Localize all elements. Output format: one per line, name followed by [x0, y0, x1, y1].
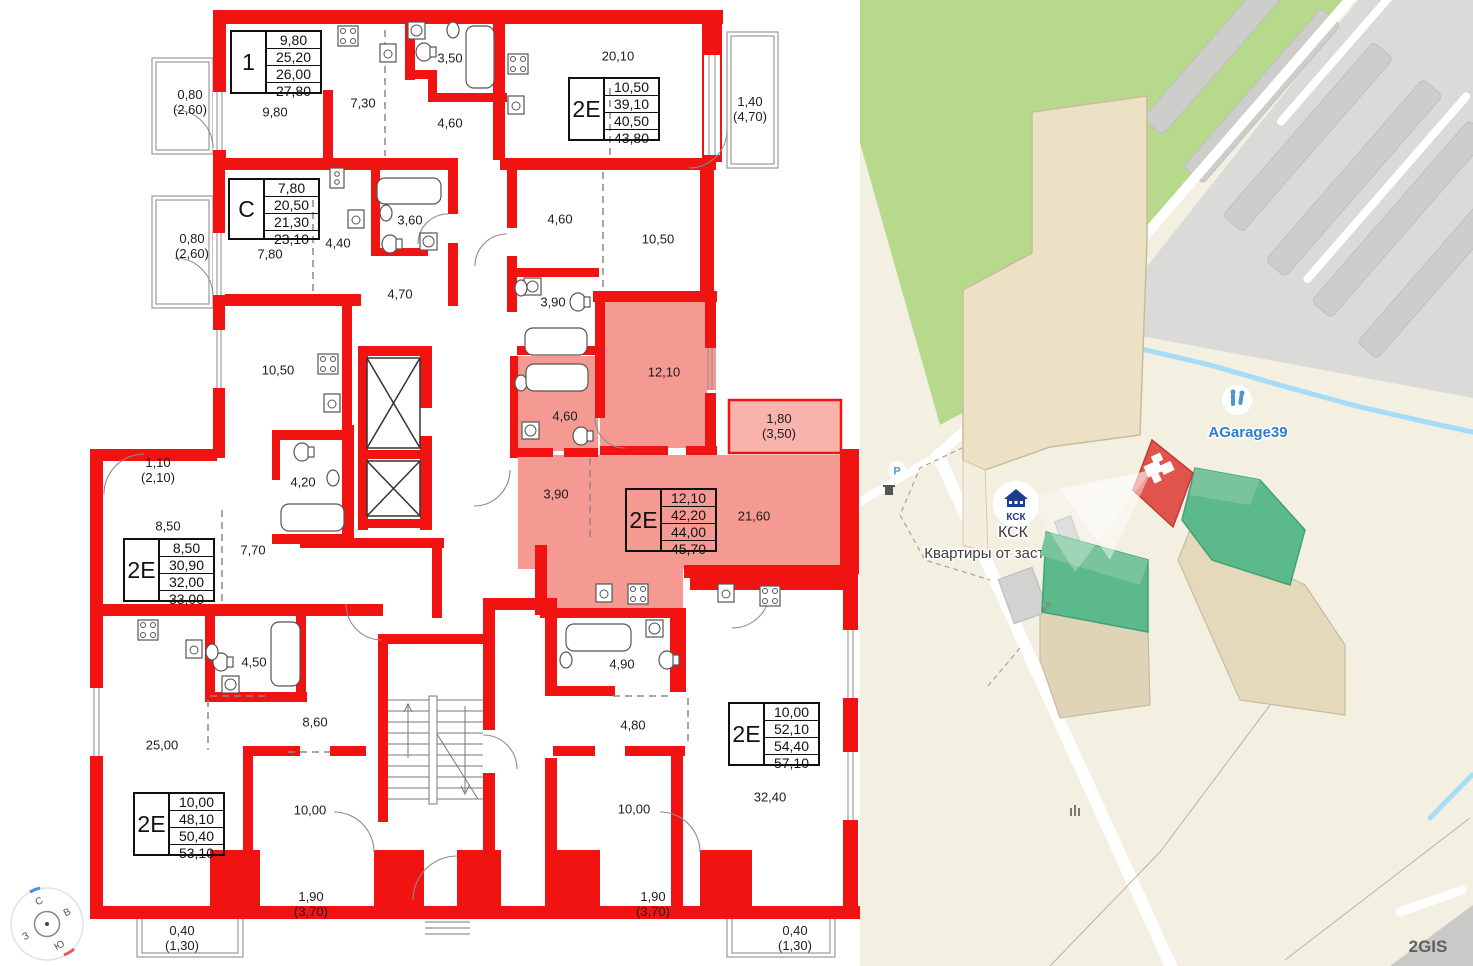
- room-area-label: 0,80 (2,60): [175, 232, 209, 262]
- bathtub-icon: [466, 26, 494, 88]
- washer-icon: [646, 620, 663, 637]
- sink-icon: [324, 394, 340, 412]
- toilet-icon: [294, 443, 314, 461]
- stove-icon: [318, 354, 338, 374]
- floorplan-drawing: С В Ю З: [0, 0, 860, 966]
- apartment-info-table[interactable]: 1 9,8025,2026,0027,80: [230, 30, 322, 94]
- room-area-label: 4,40: [325, 237, 350, 252]
- bathtub-icon: [526, 364, 588, 391]
- sink-icon: [348, 210, 364, 228]
- toilet-icon: [416, 43, 436, 61]
- basin-icon: [380, 205, 392, 221]
- room-area-label: 1,90 (3,70): [294, 890, 328, 920]
- room-area-label: 4,60: [437, 117, 462, 132]
- bathtub-icon: [566, 624, 631, 651]
- elevator-shaft: [367, 358, 420, 516]
- room-area-label: 4,90: [609, 658, 634, 673]
- room-area-label: 3,60: [397, 214, 422, 229]
- room-area-label: 10,00: [618, 803, 651, 818]
- apartment-info-table[interactable]: 2Е 8,5030,9032,0033,00: [123, 538, 215, 602]
- svg-text:Р: Р: [893, 466, 900, 478]
- washer-icon: [222, 676, 239, 693]
- room-area-label: 12,10: [648, 366, 681, 381]
- watermark: 2GIS: [1409, 937, 1448, 956]
- basin-icon: [327, 470, 339, 486]
- apartment-info-table-selected[interactable]: 2Е 12,1042,2044,0045,70: [625, 488, 717, 552]
- garage-service-icon[interactable]: [1222, 385, 1252, 415]
- bathtub-icon: [281, 504, 344, 531]
- bathtub-icon: [377, 178, 441, 204]
- stove-icon: [138, 620, 158, 640]
- stove-icon: [628, 584, 648, 604]
- map-panel[interactable]: КСК Квартиры от застройщ КСК AGarage39 Р: [860, 0, 1473, 966]
- room-area-label: 10,50: [642, 233, 675, 248]
- screen: С В Ю З 9,80 7,30 3,50 4,60 20,10 0,80 (…: [0, 0, 1473, 966]
- room-area-label: 8,60: [302, 716, 327, 731]
- basin-icon: [447, 22, 459, 38]
- room-area-label: 4,70: [387, 288, 412, 303]
- bathtub-icon: [525, 328, 587, 355]
- room-area-label: 4,50: [241, 656, 266, 671]
- room-area-label: 20,10: [602, 50, 635, 65]
- room-area-label: 1,90 (3,70): [636, 890, 670, 920]
- room-area-label: 1,80 (3,50): [762, 412, 796, 442]
- stove-icon: [330, 168, 344, 188]
- room-area-label: 1,10 (2,10): [141, 456, 175, 486]
- apartment-info-table[interactable]: 2Е 10,5039,1040,5043,80: [568, 77, 660, 141]
- sink-icon: [718, 584, 734, 602]
- room-area-label: 3,90: [540, 296, 565, 311]
- room-area-label: 7,30: [350, 97, 375, 112]
- room-area-label: 0,80 (2,60): [173, 88, 207, 118]
- sink-icon: [186, 640, 202, 658]
- room-area-label: 7,70: [240, 544, 265, 559]
- basin-icon: [206, 644, 218, 660]
- basin-icon: [515, 280, 527, 296]
- room-area-label: 32,40: [754, 791, 787, 806]
- toilet-icon: [570, 293, 590, 311]
- bathtub-icon: [271, 622, 300, 686]
- room-area-label: 0,40 (1,30): [165, 924, 199, 954]
- stove-icon: [338, 26, 358, 46]
- basin-icon: [560, 652, 572, 668]
- stove-icon: [508, 54, 528, 74]
- room-area-label: 25,00: [146, 739, 179, 754]
- room-area-label: 4,80: [620, 719, 645, 734]
- washer-icon: [408, 22, 425, 39]
- washer-icon: [420, 233, 437, 250]
- basin-icon: [515, 375, 527, 391]
- apartment-info-table[interactable]: 2Е 10,0052,1054,4057,10: [728, 702, 820, 766]
- room-area-label: 1,40 (4,70): [733, 95, 767, 125]
- room-area-label: 10,50: [262, 364, 295, 379]
- room-area-label: 10,00: [294, 804, 327, 819]
- room-area-label: 4,20: [290, 476, 315, 491]
- room-area-label: 3,50: [437, 52, 462, 67]
- svg-text:КСК: КСК: [1006, 512, 1026, 523]
- washer-icon: [522, 422, 539, 439]
- sink-icon: [508, 96, 524, 114]
- room-area-label: 21,60: [738, 510, 771, 525]
- garage-label[interactable]: AGarage39: [1208, 424, 1287, 441]
- apartment-info-table[interactable]: С 7,8020,5021,3023,10: [228, 178, 320, 240]
- parking-icon[interactable]: Р: [888, 461, 906, 479]
- compass-icon: С В Ю З: [11, 888, 83, 960]
- room-area-label: 0,40 (1,30): [778, 924, 812, 954]
- sink-icon: [596, 584, 612, 602]
- room-area-label: 9,80: [262, 106, 287, 121]
- apartment-info-table[interactable]: 2Е 10,0048,1050,4053,10: [133, 792, 225, 856]
- ksk-logo-icon[interactable]: КСК: [993, 481, 1039, 527]
- stove-icon: [760, 586, 780, 606]
- room-area-label: 3,90: [543, 488, 568, 503]
- room-area-label: 7,80: [257, 248, 282, 263]
- room-area-label: 8,50: [155, 520, 180, 535]
- sink-icon: [380, 44, 396, 62]
- room-area-label: 4,60: [547, 213, 572, 228]
- room-area-label: 4,60: [552, 410, 577, 425]
